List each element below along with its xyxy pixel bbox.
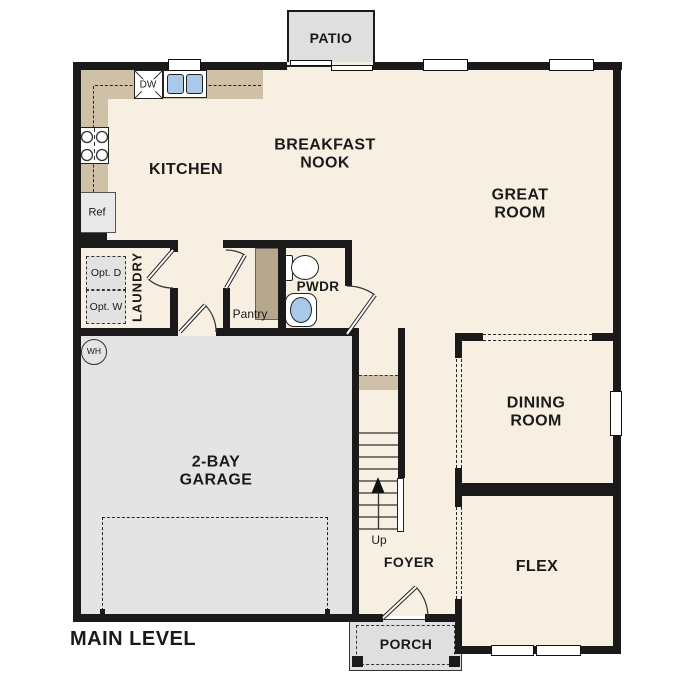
wall <box>455 599 462 653</box>
toilet-bowl <box>291 255 319 280</box>
garage-door-dashed <box>102 517 328 616</box>
open-wall-dashed <box>483 334 592 335</box>
garage-label: 2-BAY GARAGE <box>161 454 271 491</box>
porch-post <box>352 656 363 667</box>
wall <box>398 328 405 478</box>
wall <box>73 614 358 622</box>
sink-basin <box>167 74 184 94</box>
dining-room-label: DINING ROOM <box>491 395 581 432</box>
patio-label: PATIO <box>310 30 353 46</box>
sliding-door-panel <box>331 65 373 71</box>
stair-railing <box>397 478 404 532</box>
breakfast-nook-label: BREAKFAST NOOK <box>260 137 390 174</box>
stairs-up-label: Up <box>371 534 386 548</box>
foyer-label: FOYER <box>384 554 434 570</box>
optional-washer-label: Opt. W <box>89 301 123 313</box>
flex-label: FLEX <box>516 558 559 576</box>
wall <box>73 240 170 248</box>
plan-title: MAIN LEVEL <box>70 628 196 651</box>
wall <box>345 614 383 622</box>
floor-plan: PATIO <box>0 0 687 687</box>
open-wall-dashed <box>456 507 457 599</box>
kitchen-label: KITCHEN <box>149 161 223 179</box>
flex-floor-extension <box>455 616 617 648</box>
range-cooktop <box>79 127 109 164</box>
window <box>491 645 534 656</box>
wall <box>73 62 81 622</box>
garage-door-post <box>325 609 330 614</box>
wall <box>455 333 462 358</box>
laundry-label: LAUNDRY <box>131 252 146 322</box>
pwdr-label: PWDR <box>297 279 340 295</box>
wall <box>223 240 351 248</box>
great-room-label: GREAT ROOM <box>475 187 565 224</box>
porch-label: PORCH <box>380 636 433 652</box>
window <box>610 391 622 436</box>
window <box>168 59 201 71</box>
refrigerator-label: Ref <box>88 207 105 220</box>
wall <box>352 328 359 622</box>
wall <box>216 328 359 336</box>
wall <box>345 240 352 286</box>
open-wall-dashed <box>461 507 462 599</box>
wall <box>278 240 286 336</box>
window <box>423 59 468 71</box>
sliding-door-panel <box>290 60 332 66</box>
open-wall-dashed <box>456 359 457 468</box>
garage-door-post <box>100 609 105 614</box>
dishwasher-label: DW <box>139 79 158 91</box>
porch-post <box>449 656 460 667</box>
optional-dryer-label: Opt. D <box>89 267 123 279</box>
water-heater-label: WH <box>87 347 101 357</box>
wall <box>455 496 462 507</box>
wall <box>455 483 621 496</box>
wall <box>73 328 178 336</box>
wall <box>613 62 621 652</box>
open-wall-dashed <box>461 359 462 468</box>
open-wall-dashed <box>483 340 592 341</box>
sink-basin <box>186 74 203 94</box>
wall <box>170 240 178 252</box>
wall <box>592 333 621 341</box>
window <box>536 645 581 656</box>
window <box>549 59 594 71</box>
pantry-label: Pantry <box>233 308 268 322</box>
sink-bowl <box>290 297 312 323</box>
stair-storage <box>359 375 398 390</box>
